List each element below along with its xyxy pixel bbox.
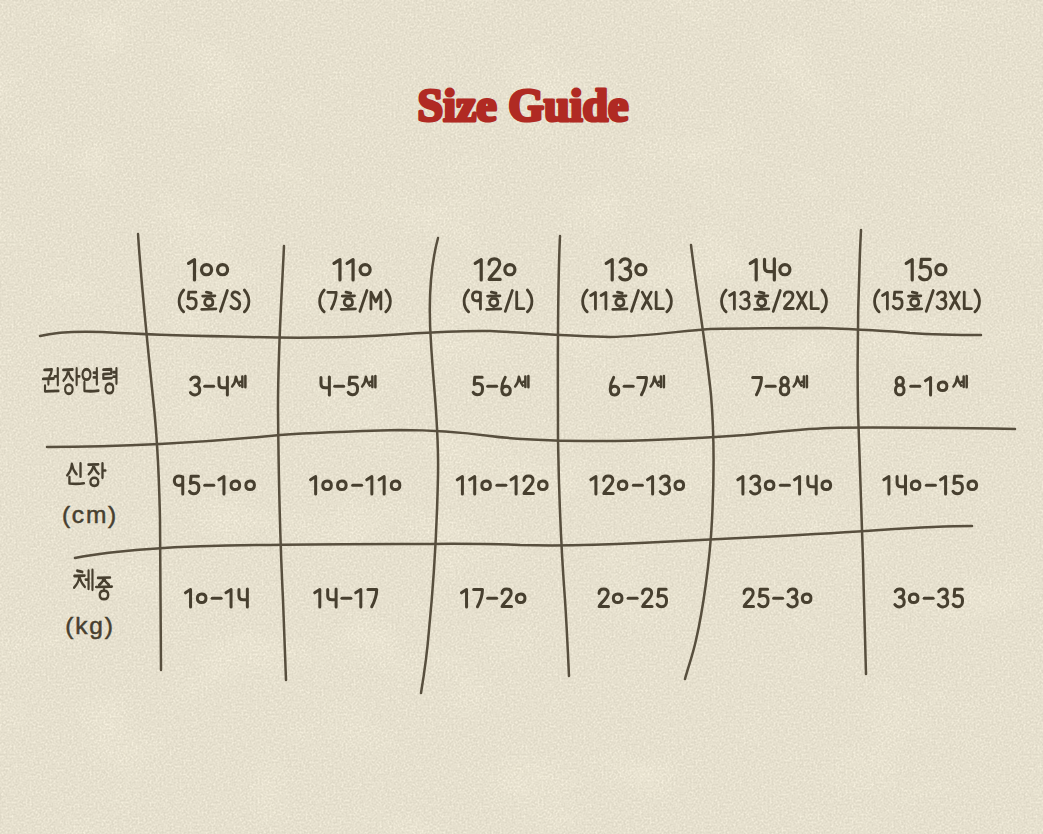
svg-text:(cm): (cm) [62,501,118,528]
svg-text:(kg): (kg) [65,612,114,639]
svg-text:Size Guide: Size Guide [418,80,629,131]
